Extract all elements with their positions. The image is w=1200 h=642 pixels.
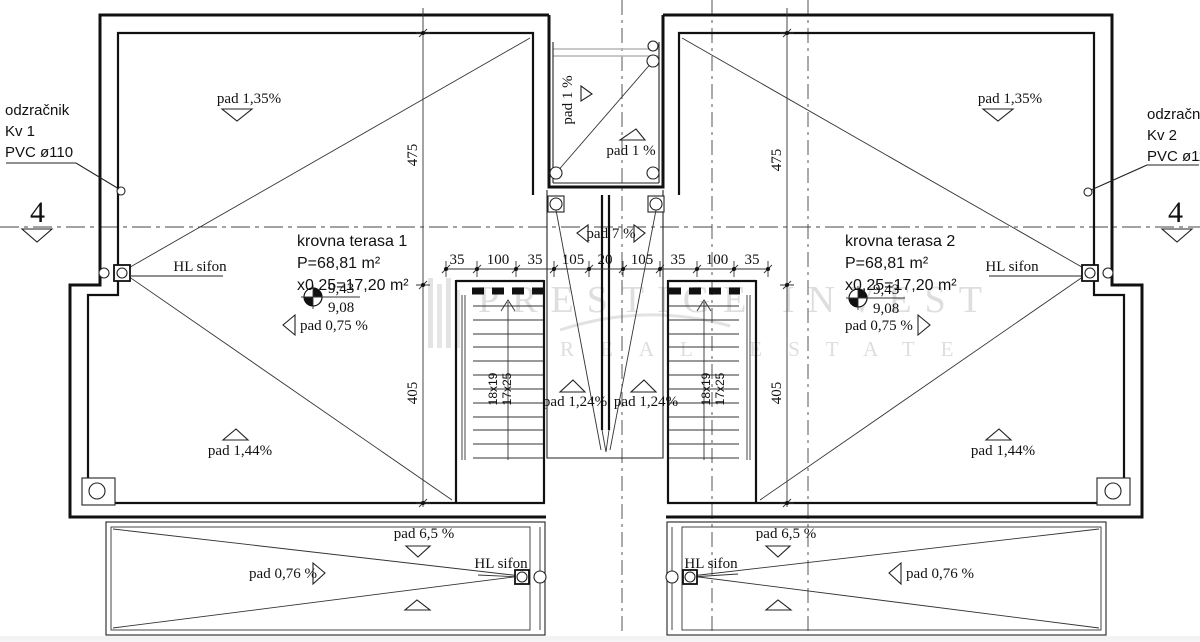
dim-h-3: 105 (562, 252, 585, 268)
terrace2-title: krovna terasa 2 (845, 233, 955, 250)
terrace2-slope-top: pad 1,35% (978, 91, 1042, 107)
court-slope-right: pad 1,24% (614, 394, 678, 410)
terrace2-siphon-label: HL sifon (985, 259, 1039, 275)
dim-v-right-475: 475 (769, 149, 785, 172)
roof-terrace-floor-plan: PRESTIGE INVEST REAL ESTATE (0, 0, 1200, 642)
stair-right-riser: 18x19 (699, 372, 713, 405)
balcony-left (106, 522, 546, 635)
section-number: 4 (30, 196, 45, 229)
dim-h-7: 100 (706, 252, 729, 268)
dim-h-8: 35 (745, 252, 760, 268)
vent-left-id: Kv 1 (5, 123, 35, 140)
balcony-right-slope: pad 0,76 % (906, 566, 974, 582)
notch-slope-vertical: pad 1 % (560, 75, 576, 124)
vent-right-name: odzračnik (1147, 106, 1200, 123)
terrace1-slope-main: pad 0,75 % (300, 318, 368, 334)
balcony-right (666, 522, 1106, 635)
notch-slope-horizontal: pad 1 % (606, 143, 655, 159)
page-edge (0, 636, 1200, 642)
dim-vertical-left (416, 8, 430, 507)
terrace1-slope-top: pad 1,35% (217, 91, 281, 107)
balcony-left-siphon: HL sifon (474, 556, 528, 572)
elevation-bottom: 9,08 (328, 300, 354, 316)
dim-h-2: 35 (528, 252, 543, 268)
dim-h-4: 20 (598, 252, 613, 268)
terrace2-slope-main: pad 0,75 % (845, 318, 913, 334)
stair-left-tread: 17x25 (500, 372, 514, 405)
section-number: 4 (1168, 196, 1183, 229)
terrace2-area: P=68,81 m² (845, 255, 929, 272)
dim-vertical-right (780, 8, 794, 507)
section-marker-right: 4 (1162, 196, 1192, 242)
section-marker-left: 4 (22, 196, 52, 242)
dim-v-left-475: 475 (405, 144, 421, 167)
dim-h-1: 100 (487, 252, 510, 268)
elevation-bottom: 9,08 (873, 301, 899, 317)
terrace1-slope-bottom: pad 1,44% (208, 443, 272, 459)
terrace1-drains (82, 187, 223, 505)
dim-h-6: 35 (671, 252, 686, 268)
court-slope: pad 7 % (586, 226, 635, 242)
balcony-left-slope: pad 0,76 % (249, 566, 317, 582)
terrace1-title: krovna terasa 1 (297, 233, 407, 250)
terrace2-slope-bottom: pad 1,44% (971, 443, 1035, 459)
vent-right-id: Kv 2 (1147, 127, 1177, 144)
balcony-left-slope-top: pad 6,5 % (394, 526, 454, 542)
terrace2-coef: x0,25=17,20 m² (845, 277, 957, 294)
vent-right-pipe: PVC ø110 (1147, 148, 1200, 165)
terrace1-coef: x0,25=17,20 m² (297, 277, 409, 294)
dim-v-right-405: 405 (769, 382, 785, 405)
watermark-line2: REAL ESTATE (560, 337, 979, 361)
terrace1-siphon-label: HL sifon (173, 259, 227, 275)
vent-left-pipe: PVC ø110 (5, 144, 73, 161)
dim-h-0: 35 (450, 252, 465, 268)
stair-right-tread: 17x25 (713, 372, 727, 405)
terrace1-area: P=68,81 m² (297, 255, 381, 272)
stair-left-riser: 18x19 (486, 372, 500, 405)
balcony-right-siphon: HL sifon (684, 556, 738, 572)
vent-left-name: odzračnik (5, 102, 70, 119)
dim-h-5: 105 (631, 252, 654, 268)
balcony-right-slope-top: pad 6,5 % (756, 526, 816, 542)
court-slope-left: pad 1,24% (543, 394, 607, 410)
dim-v-left-405: 405 (405, 382, 421, 405)
